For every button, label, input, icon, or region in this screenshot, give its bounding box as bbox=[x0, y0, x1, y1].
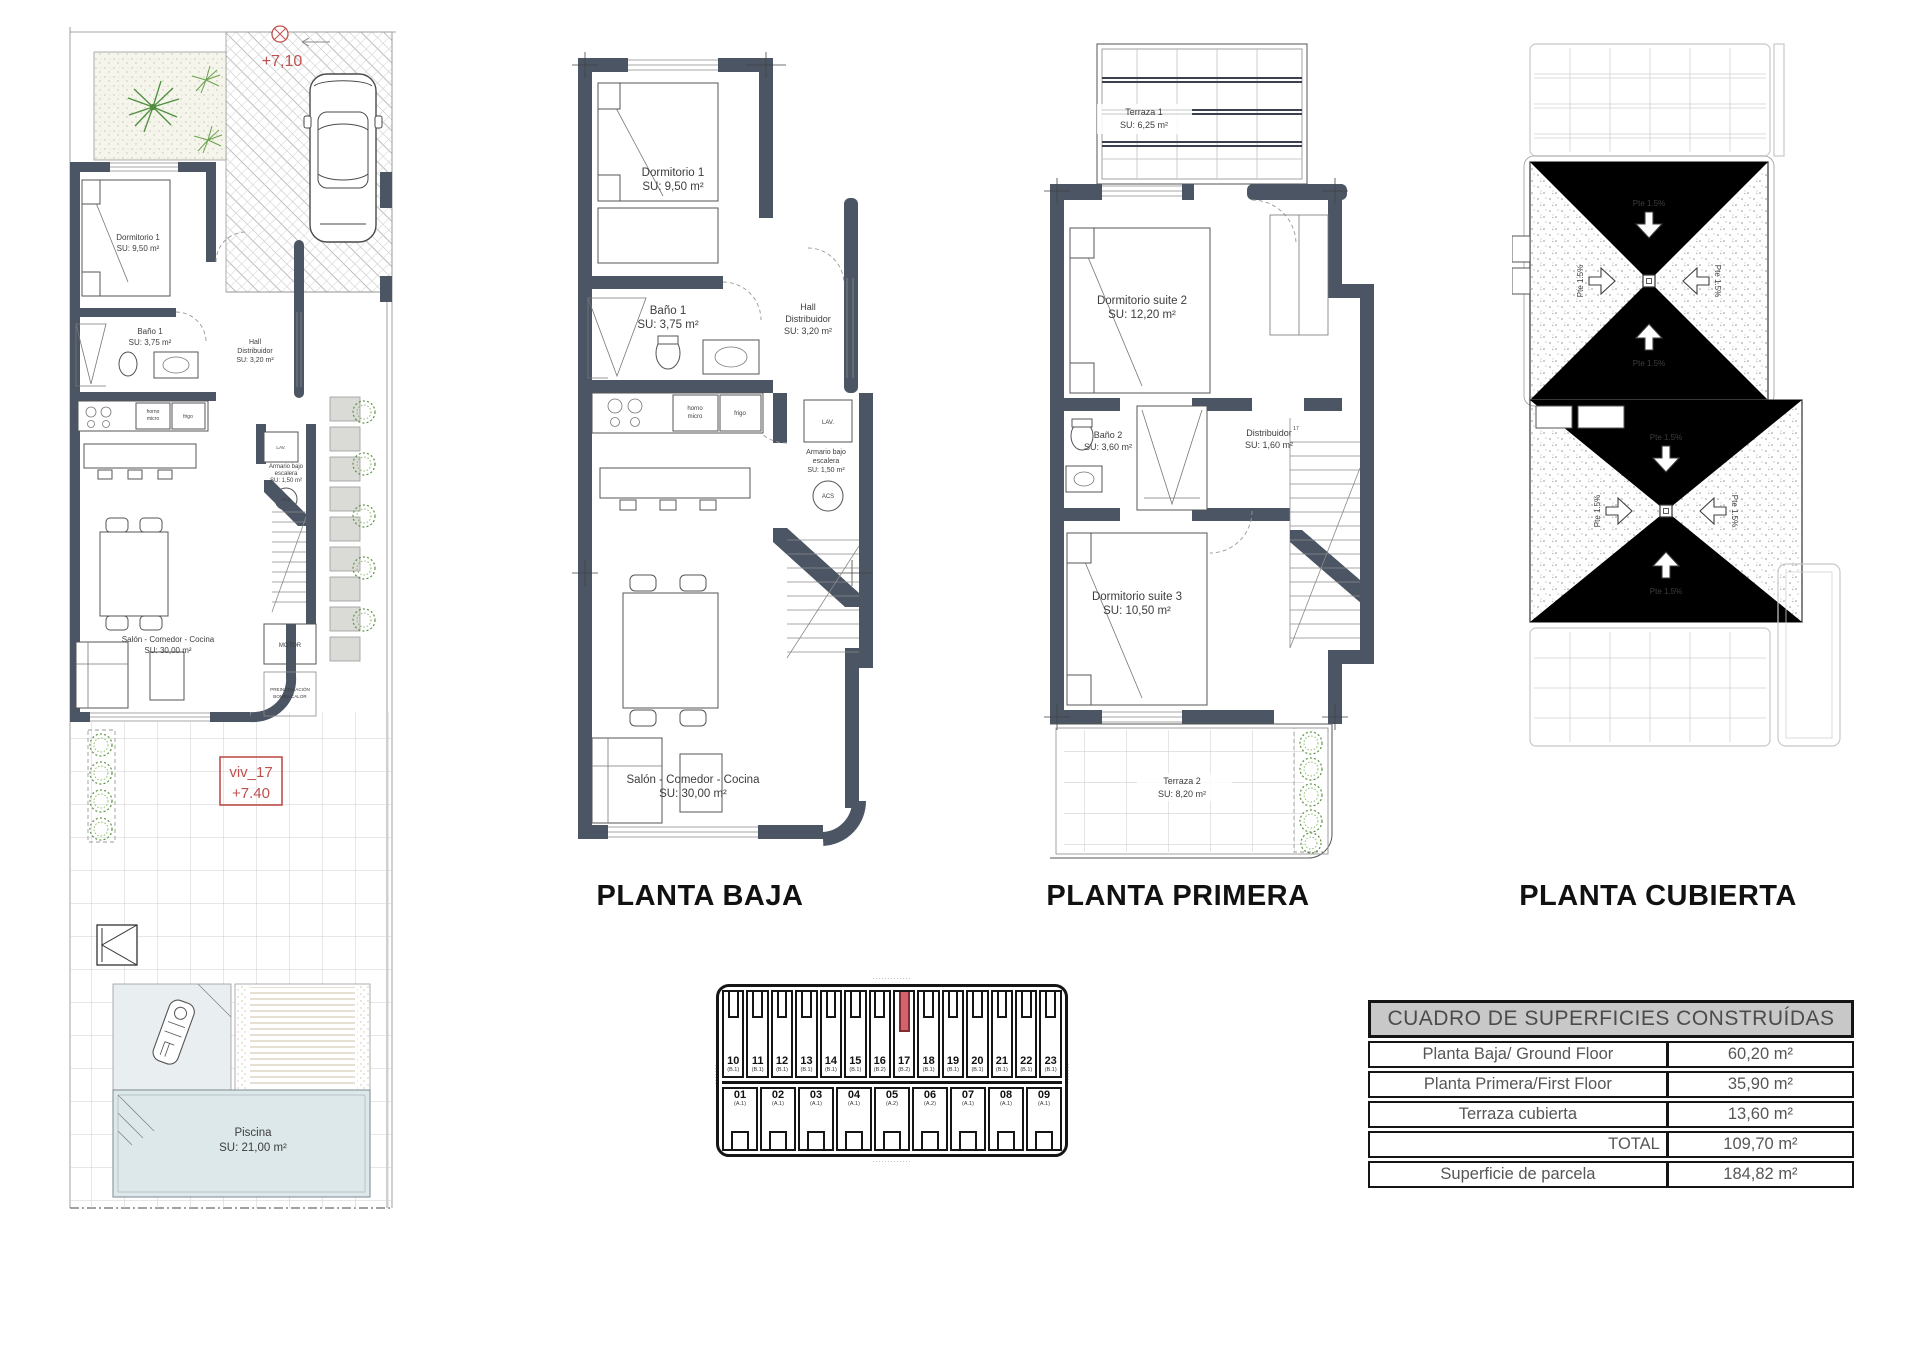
room-label: Baño 2 bbox=[1094, 430, 1123, 440]
heat-pump-label: PREINSTALACIÓN bbox=[270, 686, 310, 692]
room-area: SU: 1,50 m² bbox=[270, 478, 302, 484]
key-plan-unit-16: 16(B.2) bbox=[869, 990, 891, 1078]
appliance-label: LAV. bbox=[276, 445, 285, 450]
unit-type: (B.1) bbox=[825, 1067, 837, 1073]
unit-type: (B.2) bbox=[874, 1067, 886, 1073]
appliance-label: frigo bbox=[183, 414, 193, 420]
room-label: Distribuidor bbox=[1246, 428, 1292, 438]
neighbour-wall bbox=[380, 276, 392, 302]
key-plan-unit-01: 01(A.1) bbox=[722, 1087, 758, 1151]
slope-label: Pte 1.5% bbox=[1576, 265, 1585, 297]
key-plan-unit-14: 14(B.1) bbox=[820, 990, 842, 1078]
highlighted-unit-marker bbox=[899, 992, 910, 1032]
unit-notch bbox=[997, 1131, 1016, 1149]
unit-type: (B.1) bbox=[727, 1067, 739, 1073]
slope-label: Pte 1.5% bbox=[1650, 587, 1682, 596]
room-area: SU: 3,75 m² bbox=[129, 338, 172, 347]
room-label: Armario bajo bbox=[269, 464, 304, 470]
row-label: Terraza cubierta bbox=[1370, 1103, 1669, 1126]
room-label: escalera bbox=[813, 458, 840, 465]
unit-number: 20 bbox=[971, 1055, 983, 1067]
front-garden bbox=[94, 52, 226, 160]
unit-notch bbox=[845, 1131, 864, 1149]
pool: Piscina SU: 21,00 m² bbox=[113, 1090, 370, 1197]
appliance-label: horno bbox=[147, 409, 160, 415]
unit-number: 18 bbox=[922, 1055, 934, 1067]
site-plan: +7,10 bbox=[58, 12, 403, 1222]
unit-number: 10 bbox=[727, 1055, 739, 1067]
unit-notch bbox=[850, 992, 861, 1018]
unit-type: (B.1) bbox=[801, 1067, 813, 1073]
title-planta-primera: PLANTA PRIMERA bbox=[1038, 880, 1318, 913]
appliance-label: LAV. bbox=[822, 420, 834, 426]
surfaces-table-title: CUADRO DE SUPERFICIES CONSTRUÍDAS bbox=[1368, 1000, 1854, 1038]
unit-number: 09 bbox=[1038, 1089, 1050, 1101]
unit-number: 02 bbox=[772, 1089, 784, 1101]
room-label: Terraza 2 bbox=[1163, 776, 1201, 786]
unit-number: 01 bbox=[734, 1089, 746, 1101]
car-icon bbox=[304, 74, 382, 242]
key-plan-unit-23: 23(B.1) bbox=[1039, 990, 1061, 1078]
unit-notch bbox=[769, 1131, 788, 1149]
unit-notch bbox=[997, 992, 1008, 1018]
room-area: SU: 10,50 m² bbox=[1103, 605, 1171, 617]
appliance-label: frigo bbox=[734, 411, 746, 417]
key-plan-unit-03: 03(A.1) bbox=[798, 1087, 834, 1151]
unit-notch bbox=[1035, 1131, 1054, 1149]
room-label: Salón - Comedor - Cocina bbox=[627, 774, 761, 786]
site-level-text: +7,10 bbox=[262, 53, 303, 70]
unit-number: 14 bbox=[825, 1055, 837, 1067]
stepping-stones bbox=[330, 397, 360, 661]
site-key-plan: ············· ············· ······· ····… bbox=[716, 984, 1068, 1157]
unit-notch bbox=[826, 992, 837, 1018]
key-plan-unit-11: 11(B.1) bbox=[746, 990, 768, 1078]
unit-id: viv_17 bbox=[229, 764, 272, 781]
slope-label: Pte 1.5% bbox=[1730, 495, 1739, 527]
neighbour-wall bbox=[380, 172, 392, 208]
room-label: Distribuidor bbox=[785, 314, 831, 324]
room-label: Hall bbox=[800, 302, 816, 312]
unit-type: (B.1) bbox=[923, 1067, 935, 1073]
unit-type: (B.1) bbox=[849, 1067, 861, 1073]
unit-notch bbox=[921, 1131, 940, 1149]
unit-number: 08 bbox=[1000, 1089, 1012, 1101]
ghost-roof-bottom bbox=[1530, 628, 1770, 746]
room-label: Baño 1 bbox=[650, 305, 686, 317]
table-row: Terraza cubierta 13,60 m² bbox=[1368, 1101, 1854, 1128]
unit-type: (B.1) bbox=[776, 1067, 788, 1073]
room-label: Dormitorio 1 bbox=[642, 167, 705, 179]
unit-type: (A.2) bbox=[886, 1101, 898, 1107]
surfaces-table: CUADRO DE SUPERFICIES CONSTRUÍDAS Planta… bbox=[1368, 1000, 1854, 1188]
room-label: Hall bbox=[249, 339, 262, 346]
key-plan-unit-21: 21(B.1) bbox=[991, 990, 1013, 1078]
sun-deck bbox=[113, 984, 370, 1090]
unit-level: +7.40 bbox=[232, 785, 270, 802]
row-value: 35,90 m² bbox=[1669, 1073, 1852, 1096]
unit-number: 07 bbox=[962, 1089, 974, 1101]
room-area: SU: 3,75 m² bbox=[637, 319, 699, 331]
planta-baja-plan: Dormitorio 1 SU: 9,50 m² Baño 1 SU: 3,75… bbox=[568, 48, 913, 863]
pool-area: SU: 21,00 m² bbox=[219, 1142, 287, 1154]
key-plan-unit-12: 12(B.1) bbox=[771, 990, 793, 1078]
unit-notch bbox=[752, 992, 763, 1018]
unit-number: 05 bbox=[886, 1089, 898, 1101]
unit-number: 06 bbox=[924, 1089, 936, 1101]
unit-notch bbox=[959, 1131, 978, 1149]
room-label: escalera bbox=[275, 471, 298, 477]
room-area: SU: 6,25 m² bbox=[1120, 120, 1168, 130]
room-area: SU: 30,00 m² bbox=[144, 646, 191, 655]
unit-type: (B.2) bbox=[898, 1067, 910, 1073]
key-plan-unit-10: 10(B.1) bbox=[722, 990, 744, 1078]
unit-type: (A.1) bbox=[962, 1101, 974, 1107]
unit-notch bbox=[728, 992, 739, 1018]
unit-number: 19 bbox=[947, 1055, 959, 1067]
key-plan-unit-22: 22(B.1) bbox=[1015, 990, 1037, 1078]
room-label: Dormitorio 1 bbox=[116, 233, 160, 242]
key-plan-unit-05: 05(A.2) bbox=[874, 1087, 910, 1151]
unit-type: (B.1) bbox=[1045, 1067, 1057, 1073]
unit-notch bbox=[874, 992, 885, 1018]
unit-type: (B.1) bbox=[971, 1067, 983, 1073]
room-label: Dormitorio suite 2 bbox=[1097, 295, 1187, 307]
key-plan-row-bottom: 01(A.1)02(A.1)03(A.1)04(A.1)05(A.2)06(A.… bbox=[719, 1084, 1065, 1154]
street-label-bottom: ············· bbox=[873, 1159, 912, 1165]
table-row: Superficie de parcela 184,82 m² bbox=[1368, 1161, 1854, 1188]
room-area: SU: 9,50 m² bbox=[117, 244, 160, 253]
key-plan-unit-20: 20(B.1) bbox=[966, 990, 988, 1078]
room-area: SU: 3,20 m² bbox=[784, 326, 832, 336]
pool-label: Piscina bbox=[234, 1127, 272, 1139]
furniture bbox=[1066, 215, 1374, 705]
unit-number: 23 bbox=[1045, 1055, 1057, 1067]
room-label: Dormitorio suite 3 bbox=[1092, 591, 1182, 603]
row-label: TOTAL bbox=[1370, 1133, 1669, 1156]
title-planta-baja: PLANTA BAJA bbox=[560, 880, 840, 913]
unit-notch bbox=[1021, 992, 1032, 1018]
unit-type: (A.1) bbox=[772, 1101, 784, 1107]
planta-cubierta-plan: Pte 1.5% Pte 1.5% Pte 1.5% Pte 1.5% Pte … bbox=[1512, 40, 1862, 770]
acs-label: ACS bbox=[822, 494, 834, 500]
room-area: SU: 30,00 m² bbox=[659, 788, 727, 800]
slope-label: Pte 1.5% bbox=[1713, 265, 1722, 297]
unit-notch bbox=[731, 1131, 750, 1149]
unit-notch bbox=[883, 1131, 902, 1149]
key-plan-unit-15: 15(B.1) bbox=[844, 990, 866, 1078]
drain-box bbox=[97, 925, 137, 965]
unit-type: (A.1) bbox=[734, 1101, 746, 1107]
unit-number: 04 bbox=[848, 1089, 860, 1101]
table-row: Planta Primera/First Floor 35,90 m² bbox=[1368, 1071, 1854, 1098]
unit-type: (B.1) bbox=[996, 1067, 1008, 1073]
room-label: Distribuidor bbox=[237, 348, 273, 355]
street-label-top: ············· bbox=[873, 976, 912, 982]
unit-notch bbox=[948, 992, 959, 1018]
slope-label: Pte 1.5% bbox=[1650, 433, 1682, 442]
unit-notch bbox=[801, 992, 812, 1018]
stair-number: 17 bbox=[1293, 426, 1299, 432]
room-area: SU: 9,50 m² bbox=[642, 181, 704, 193]
room-label: Terraza 1 bbox=[1125, 107, 1163, 117]
room-area: SU: 8,20 m² bbox=[1158, 789, 1206, 799]
room-area: SU: 3,20 m² bbox=[236, 357, 274, 364]
unit-number: 13 bbox=[800, 1055, 812, 1067]
unit-type: (B.1) bbox=[1020, 1067, 1032, 1073]
unit-notch bbox=[807, 1131, 826, 1149]
row-value: 60,20 m² bbox=[1669, 1043, 1852, 1066]
plan-sheet: +7,10 bbox=[0, 0, 1920, 1356]
key-plan-unit-09: 09(A.1) bbox=[1026, 1087, 1062, 1151]
unit-notch bbox=[972, 992, 983, 1018]
appliance-label: horno bbox=[687, 406, 703, 412]
unit-type: (A.1) bbox=[1000, 1101, 1012, 1107]
unit-notch bbox=[923, 992, 934, 1018]
room-label: Salón - Comedor - Cocina bbox=[122, 635, 215, 644]
key-plan-unit-08: 08(A.1) bbox=[988, 1087, 1024, 1151]
chimney bbox=[1512, 268, 1530, 294]
unit-type: (A.2) bbox=[924, 1101, 936, 1107]
room-label: Armario bajo bbox=[806, 449, 846, 456]
key-plan-unit-04: 04(A.1) bbox=[836, 1087, 872, 1151]
unit-number: 21 bbox=[996, 1055, 1008, 1067]
unit-number: 11 bbox=[752, 1055, 764, 1067]
roof-upper: Pte 1.5% Pte 1.5% Pte 1.5% Pte 1.5% bbox=[1512, 156, 1774, 406]
unit-number: 15 bbox=[849, 1055, 861, 1067]
room-area: SU: 3,60 m² bbox=[1084, 442, 1132, 452]
chimney bbox=[1512, 236, 1530, 262]
ghost-roof-top bbox=[1530, 44, 1784, 156]
room-area: SU: 1,50 m² bbox=[807, 467, 845, 474]
title-planta-cubierta: PLANTA CUBIERTA bbox=[1518, 880, 1798, 913]
planta-primera-plan: Terraza 1 SU: 6,25 m² Dormitorio suite 2… bbox=[1042, 38, 1382, 868]
room-area: SU: 1,60 m² bbox=[1245, 440, 1293, 450]
key-plan-unit-18: 18(B.1) bbox=[917, 990, 939, 1078]
unit-type: (A.1) bbox=[1038, 1101, 1050, 1107]
unit-number: 03 bbox=[810, 1089, 822, 1101]
row-value: 184,82 m² bbox=[1669, 1163, 1852, 1186]
street-label-left: ······· bbox=[714, 1063, 720, 1084]
slope-label: Pte 1.5% bbox=[1633, 199, 1665, 208]
table-row: Planta Baja/ Ground Floor 60,20 m² bbox=[1368, 1041, 1854, 1068]
row-label: Superficie de parcela bbox=[1370, 1163, 1669, 1186]
appliance-label: micro bbox=[688, 414, 703, 420]
unit-notch bbox=[1045, 992, 1056, 1018]
appliance-label: micro bbox=[147, 416, 159, 422]
unit-number: 22 bbox=[1020, 1055, 1032, 1067]
acs-label: ACS bbox=[281, 497, 290, 502]
room-label: Baño 1 bbox=[137, 327, 163, 336]
room-area: SU: 12,20 m² bbox=[1108, 309, 1176, 321]
key-plan-unit-19: 19(B.1) bbox=[942, 990, 964, 1078]
slope-label: Pte 1.5% bbox=[1593, 495, 1602, 527]
row-value: 109,70 m² bbox=[1669, 1133, 1852, 1156]
roof-lower: Pte 1.5% Pte 1.5% Pte 1.5% Pte 1.5% bbox=[1530, 400, 1802, 622]
unit-type: (B.1) bbox=[947, 1067, 959, 1073]
unit-type: (A.1) bbox=[810, 1101, 822, 1107]
row-value: 13,60 m² bbox=[1669, 1103, 1852, 1126]
key-plan-row-top: 10(B.1)11(B.1)12(B.1)13(B.1)14(B.1)15(B.… bbox=[719, 987, 1065, 1081]
motor-label: MOTOR bbox=[279, 643, 302, 649]
key-plan-unit-17: 17(B.2) bbox=[893, 990, 915, 1078]
street-label-right: ······· bbox=[1065, 1063, 1071, 1084]
row-label: Planta Primera/First Floor bbox=[1370, 1073, 1669, 1096]
key-plan-unit-06: 06(A.2) bbox=[912, 1087, 948, 1151]
unit-type: (A.1) bbox=[848, 1101, 860, 1107]
unit-notch bbox=[777, 992, 788, 1018]
door-arcs bbox=[1210, 200, 1296, 553]
key-plan-unit-02: 02(A.1) bbox=[760, 1087, 796, 1151]
heat-pump-label: BOMBA CALOR bbox=[273, 694, 307, 699]
key-plan-unit-13: 13(B.1) bbox=[795, 990, 817, 1078]
unit-number: 12 bbox=[776, 1055, 788, 1067]
table-row-total: TOTAL 109,70 m² bbox=[1368, 1131, 1854, 1158]
unit-number: 16 bbox=[874, 1055, 886, 1067]
unit-number: 17 bbox=[898, 1055, 910, 1067]
key-plan-unit-07: 07(A.1) bbox=[950, 1087, 986, 1151]
slope-label: Pte 1.5% bbox=[1633, 359, 1665, 368]
row-label: Planta Baja/ Ground Floor bbox=[1370, 1043, 1669, 1066]
unit-type: (B.1) bbox=[752, 1067, 764, 1073]
